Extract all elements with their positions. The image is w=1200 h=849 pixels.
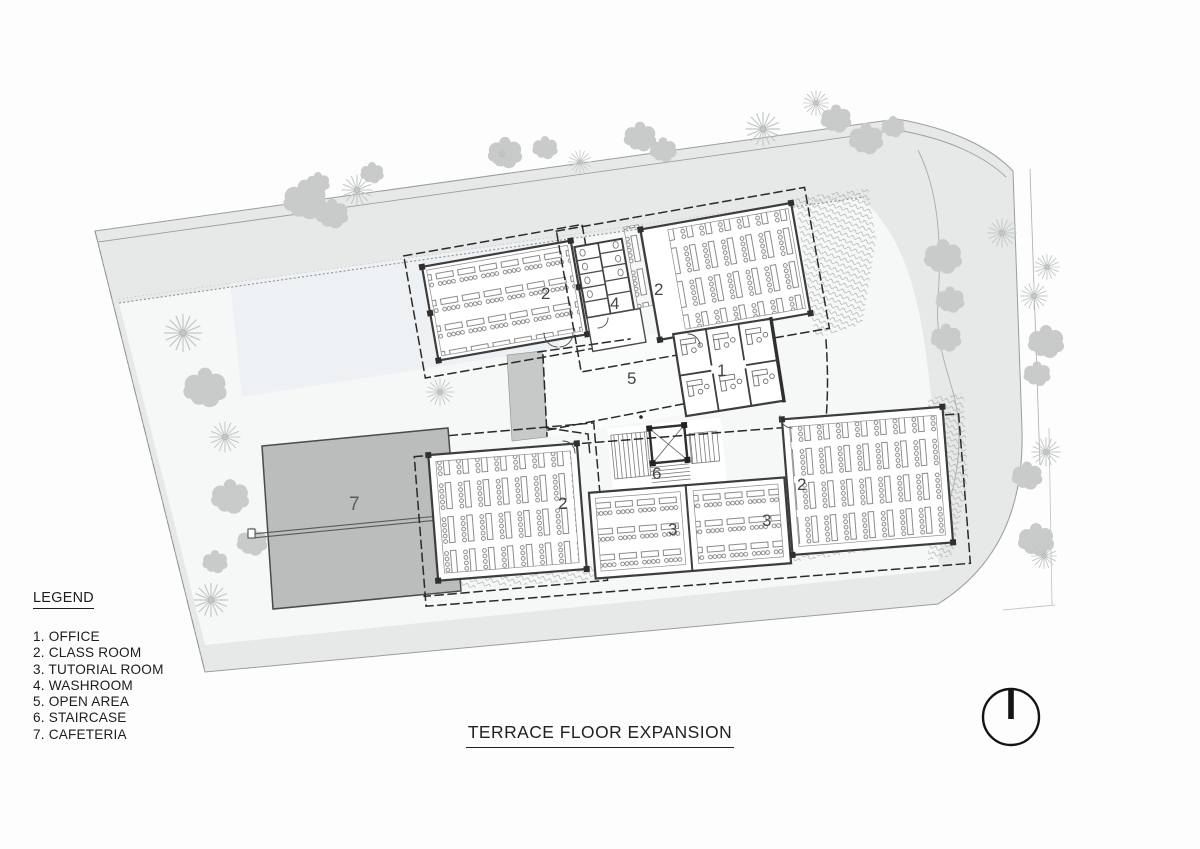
label-cafeteria: 7: [349, 494, 360, 515]
label-classroom-br: 2: [797, 475, 806, 494]
legend-item-classroom: 2. CLASS ROOM: [33, 645, 164, 661]
staircase: [607, 418, 727, 493]
label-washroom: 4: [610, 294, 619, 313]
road-east-line: [1030, 169, 1040, 465]
office: [673, 319, 784, 416]
label-classroom-tl: 2: [541, 284, 550, 303]
legend-item-open-area: 5. OPEN AREA: [33, 694, 164, 710]
label-classroom-tr: 2: [654, 280, 663, 299]
label-staircase: 6: [652, 464, 661, 483]
label-office: 1: [717, 361, 726, 380]
column-dot: [639, 415, 643, 419]
legend-item-tutorial: 3. TUTORIAL ROOM: [33, 662, 164, 678]
label-tutorial-1: 3: [668, 520, 677, 539]
label-classroom-bl: 2: [558, 494, 567, 513]
legend-heading: LEGEND: [33, 590, 94, 609]
legend-item-office: 1. OFFICE: [33, 629, 164, 645]
sheet-title-block: TERRACE FLOOR EXPANSION: [0, 722, 1200, 748]
rail-post: [248, 529, 255, 538]
sheet-title: TERRACE FLOOR EXPANSION: [466, 722, 734, 748]
tutorial-rooms: [589, 477, 791, 578]
legend: LEGEND 1. OFFICE 2. CLASS ROOM 3. TUTORI…: [33, 589, 164, 743]
label-tutorial-2: 3: [762, 511, 771, 530]
legend-item-washroom: 4. WASHROOM: [33, 678, 164, 694]
label-open-area: 5: [627, 369, 636, 388]
terrace-floor-plan-sheet: 2 4 2 1 5 6 2 3 3 2 7 LEGEND 1. OFFICE 2…: [0, 0, 1200, 849]
